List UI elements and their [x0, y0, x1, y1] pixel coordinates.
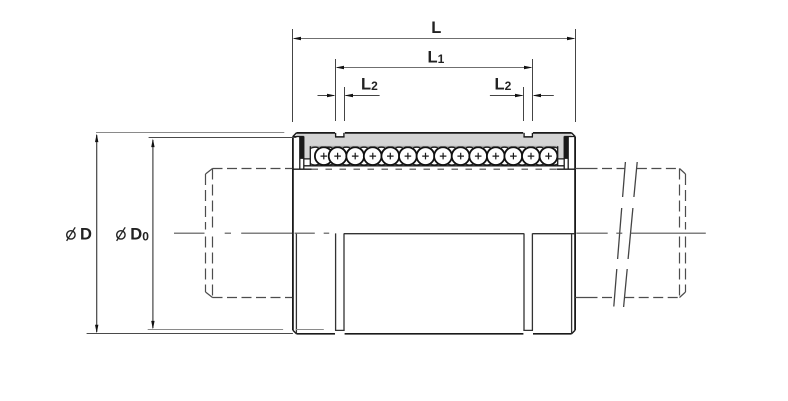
svg-text:D: D [80, 225, 92, 243]
svg-text:L: L [431, 19, 441, 37]
svg-text:L2: L2 [495, 76, 512, 94]
svg-text:L1: L1 [428, 49, 445, 67]
svg-text:L2: L2 [361, 76, 378, 94]
